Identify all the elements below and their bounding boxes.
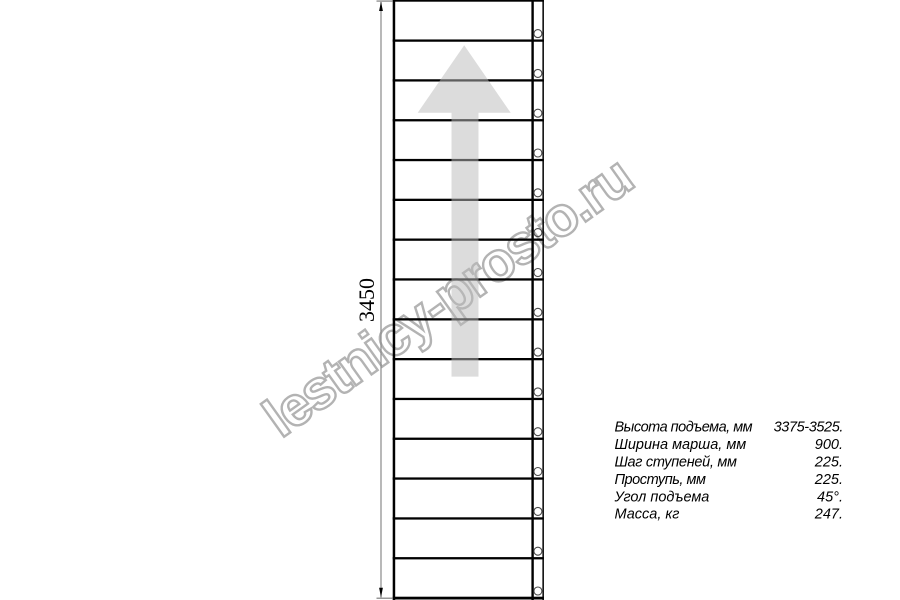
svg-text:3450: 3450 xyxy=(354,278,379,322)
svg-text:225.: 225. xyxy=(814,472,843,488)
svg-text:45°.: 45°. xyxy=(817,489,843,505)
svg-text:225.: 225. xyxy=(814,455,843,471)
svg-text:Угол подъема: Угол подъема xyxy=(614,489,710,505)
svg-text:Высота подъема, мм: Высота подъема, мм xyxy=(615,420,753,436)
svg-text:Шаг ступеней, мм: Шаг ступеней, мм xyxy=(615,455,737,471)
svg-text:Масса, кг: Масса, кг xyxy=(615,507,680,523)
svg-text:Проступь, мм: Проступь, мм xyxy=(615,472,707,488)
svg-text:247.: 247. xyxy=(814,507,843,523)
svg-text:Ширина марша, мм: Ширина марша, мм xyxy=(615,437,747,453)
svg-text:3375-3525.: 3375-3525. xyxy=(774,420,843,436)
svg-text:900.: 900. xyxy=(815,437,843,453)
